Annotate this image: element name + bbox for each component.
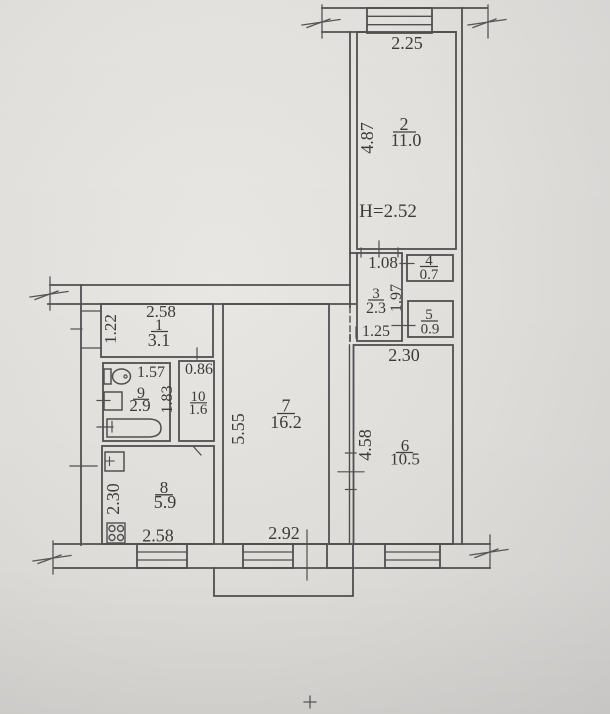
svg-text:H=2.52: H=2.52 xyxy=(359,201,417,222)
svg-text:1.97: 1.97 xyxy=(388,284,405,312)
svg-text:10.5: 10.5 xyxy=(390,450,420,469)
svg-text:2.30: 2.30 xyxy=(103,483,123,515)
svg-text:2.9: 2.9 xyxy=(129,396,150,415)
svg-text:1.25: 1.25 xyxy=(362,323,390,340)
svg-text:2.3: 2.3 xyxy=(366,300,386,317)
svg-text:0.86: 0.86 xyxy=(185,361,213,378)
svg-text:5.9: 5.9 xyxy=(154,492,177,512)
svg-text:11.0: 11.0 xyxy=(391,130,422,150)
svg-text:3.1: 3.1 xyxy=(148,330,171,350)
svg-text:1.83: 1.83 xyxy=(159,386,176,414)
svg-text:1.57: 1.57 xyxy=(137,364,165,381)
svg-text:4.87: 4.87 xyxy=(357,122,377,154)
svg-text:1.22: 1.22 xyxy=(101,314,120,344)
svg-text:2.92: 2.92 xyxy=(268,523,300,543)
svg-text:0.7: 0.7 xyxy=(420,267,439,283)
svg-text:1.08: 1.08 xyxy=(368,253,398,272)
svg-text:2.30: 2.30 xyxy=(388,345,420,365)
svg-text:4.58: 4.58 xyxy=(355,429,375,461)
svg-text:2.25: 2.25 xyxy=(391,33,423,53)
svg-text:5.55: 5.55 xyxy=(228,413,248,445)
svg-text:0.9: 0.9 xyxy=(421,322,440,338)
svg-text:2.58: 2.58 xyxy=(142,526,174,546)
svg-text:1.6: 1.6 xyxy=(189,402,208,418)
svg-text:16.2: 16.2 xyxy=(270,412,302,432)
